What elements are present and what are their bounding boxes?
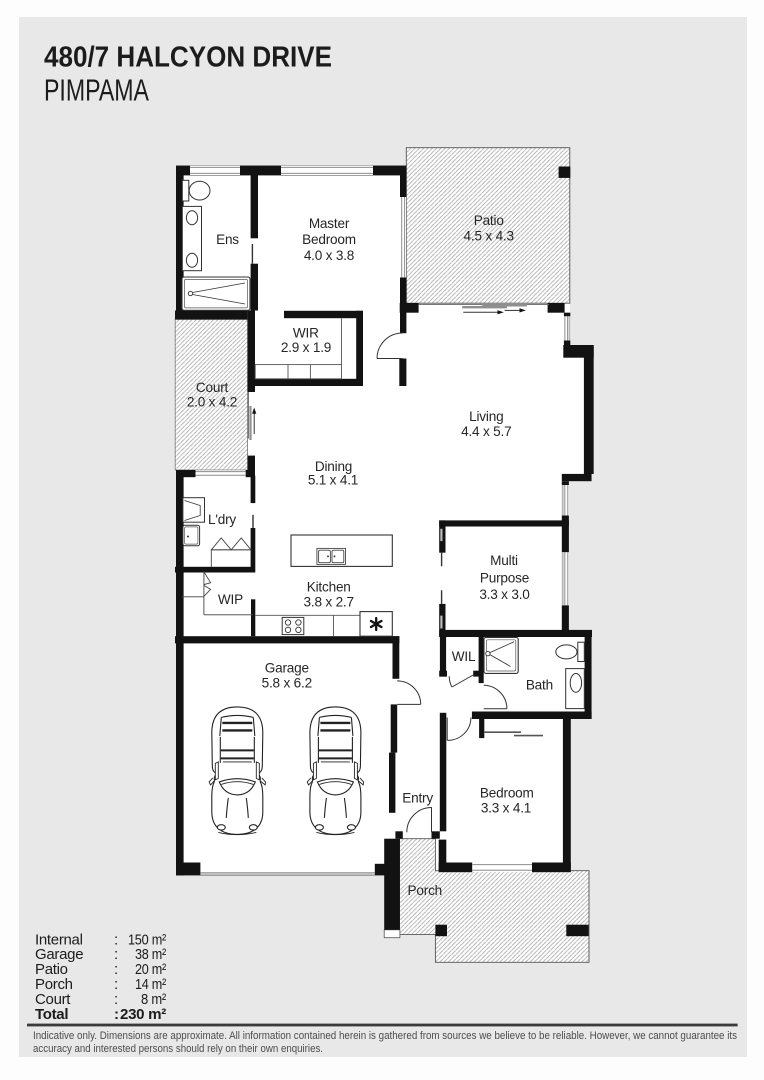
- svg-text:Bath: Bath: [526, 677, 553, 692]
- svg-text:WIR: WIR: [293, 326, 319, 341]
- svg-text:Entry: Entry: [402, 791, 433, 806]
- svg-text:Master: Master: [309, 216, 350, 231]
- svg-text:Porch: Porch: [408, 883, 443, 898]
- svg-text:Court: Court: [196, 380, 229, 395]
- svg-text:3.3 x 4.1: 3.3 x 4.1: [481, 801, 531, 816]
- svg-text:480/7 HALCYON DRIVE: 480/7 HALCYON DRIVE: [44, 42, 332, 74]
- svg-text:2.9 x 1.9: 2.9 x 1.9: [281, 340, 331, 355]
- svg-text:Patio: Patio: [474, 213, 504, 228]
- svg-text:4.0 x 3.8: 4.0 x 3.8: [304, 248, 354, 263]
- svg-text:WIP: WIP: [218, 592, 243, 607]
- svg-text:Multi: Multi: [490, 553, 518, 568]
- svg-text:3.3 x 3.0: 3.3 x 3.0: [479, 587, 530, 602]
- svg-text:4.5 x 4.3: 4.5 x 4.3: [464, 228, 514, 243]
- svg-text:Kitchen: Kitchen: [307, 580, 351, 595]
- svg-text:WIL: WIL: [452, 649, 476, 664]
- svg-text:230 m²: 230 m²: [120, 1006, 166, 1023]
- svg-text:4.4 x 5.7: 4.4 x 5.7: [461, 424, 511, 439]
- svg-text:PIMPAMA: PIMPAMA: [44, 73, 149, 108]
- svg-text:L'dry: L'dry: [208, 512, 236, 527]
- svg-text:5.1 x 4.1: 5.1 x 4.1: [308, 473, 358, 488]
- svg-text:Purpose: Purpose: [480, 571, 529, 586]
- svg-text:2.0 x 4.2: 2.0 x 4.2: [187, 394, 237, 409]
- svg-text:Garage: Garage: [265, 661, 309, 676]
- svg-text::: :: [114, 1006, 119, 1023]
- svg-text:Total: Total: [35, 1006, 68, 1023]
- svg-text:Bedroom: Bedroom: [302, 232, 356, 247]
- svg-text:Living: Living: [469, 409, 503, 424]
- svg-text:5.8 x 6.2: 5.8 x 6.2: [262, 675, 312, 690]
- svg-text:3.8 x 2.7: 3.8 x 2.7: [304, 595, 354, 610]
- svg-text:accuracy and interested person: accuracy and interested persons should r…: [33, 1043, 323, 1055]
- svg-text:Indicative only. Dimensions ar: Indicative only. Dimensions are approxim…: [33, 1030, 738, 1042]
- svg-text:Ens: Ens: [216, 232, 239, 247]
- svg-text:Bedroom: Bedroom: [480, 786, 534, 801]
